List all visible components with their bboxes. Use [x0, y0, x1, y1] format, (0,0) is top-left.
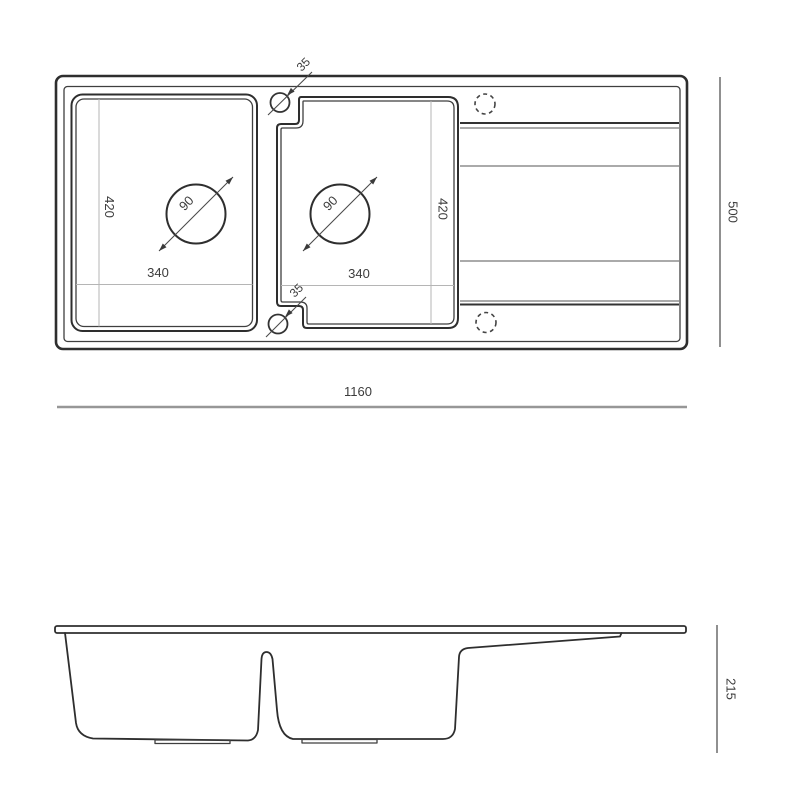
mounting-hole-bottom-arrow: [285, 309, 293, 317]
overall-depth-label: 500: [726, 201, 741, 223]
mounting-hole-top-arrow: [287, 88, 295, 96]
side-drain-boss-right: [302, 740, 377, 744]
left-drain-diameter-label: 90: [176, 193, 197, 214]
side-height-label: 215: [724, 678, 739, 700]
left-drain-diameter-line: [159, 177, 233, 251]
tap-hole-dashed-circle-bottom: [476, 313, 496, 333]
drawing-canvas: 420 340 90 420 340: [0, 0, 800, 800]
right-drain-diameter-line: [303, 177, 377, 251]
right-bowl: 420 340 90: [277, 97, 458, 328]
side-flange: [55, 626, 686, 633]
right-bowl-inner-edge: [281, 101, 454, 324]
right-drain-diameter-label: 90: [320, 193, 341, 214]
left-bowl: 420 340 90: [72, 95, 258, 332]
left-bowl-depth-label: 420: [102, 196, 117, 218]
overall-width-label: 1160: [344, 384, 372, 399]
side-profile: [65, 633, 622, 741]
drainboard: [460, 94, 679, 333]
right-bowl-width-label: 340: [348, 266, 370, 281]
mounting-hole-bottom: [269, 315, 288, 334]
sink-inner-rim: [64, 87, 680, 342]
overall-dimensions: 1160 500: [57, 77, 741, 407]
left-bowl-width-label: 340: [147, 265, 169, 280]
right-bowl-depth-label: 420: [436, 198, 451, 220]
top-view: 420 340 90 420 340: [56, 55, 741, 407]
sink-technical-drawing: 420 340 90 420 340: [0, 0, 800, 800]
tap-hole-dashed-circle-top: [475, 94, 495, 114]
mounting-hole-bottom-label: 35: [287, 281, 307, 301]
mounting-hole-top-label: 35: [294, 55, 314, 75]
side-drain-boss-left: [155, 740, 230, 744]
side-view: 215: [55, 625, 739, 753]
sink-outer-edge: [56, 76, 687, 349]
